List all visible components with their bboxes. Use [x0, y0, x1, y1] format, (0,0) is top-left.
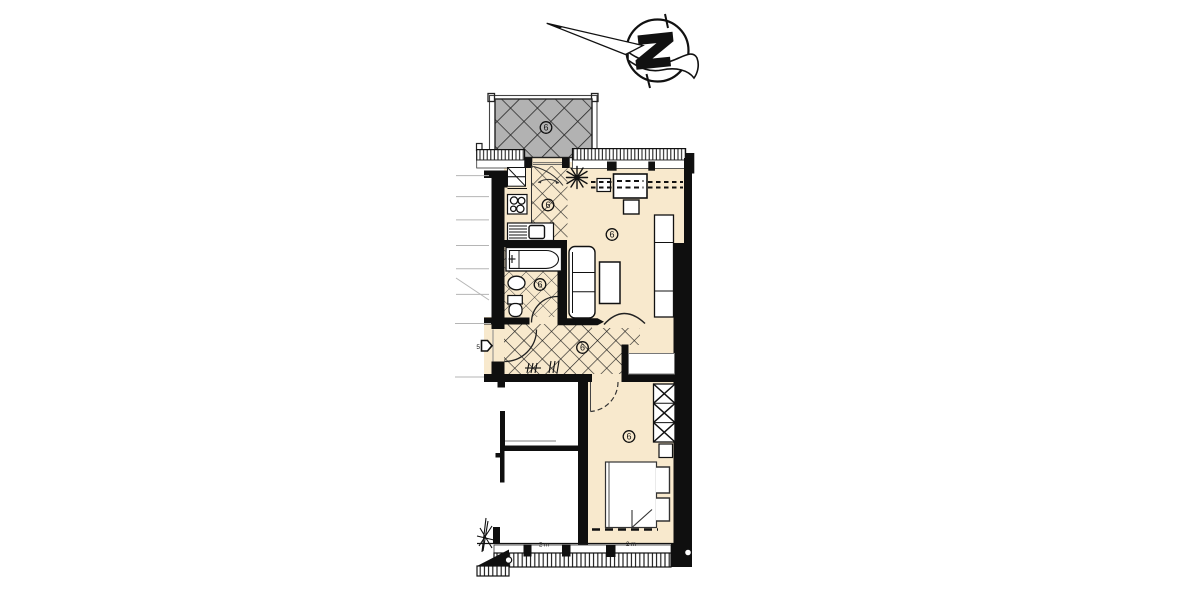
svg-text:2 m: 2 m: [626, 542, 636, 548]
svg-text:6: 6: [543, 123, 548, 133]
svg-text:2 m: 2 m: [539, 543, 549, 549]
svg-text:6: 6: [545, 200, 550, 210]
svg-text:6: 6: [580, 343, 585, 353]
svg-text:5: 5: [476, 344, 480, 351]
svg-text:6: 6: [609, 230, 614, 240]
svg-text:6: 6: [626, 432, 631, 442]
svg-text:6: 6: [537, 280, 542, 290]
